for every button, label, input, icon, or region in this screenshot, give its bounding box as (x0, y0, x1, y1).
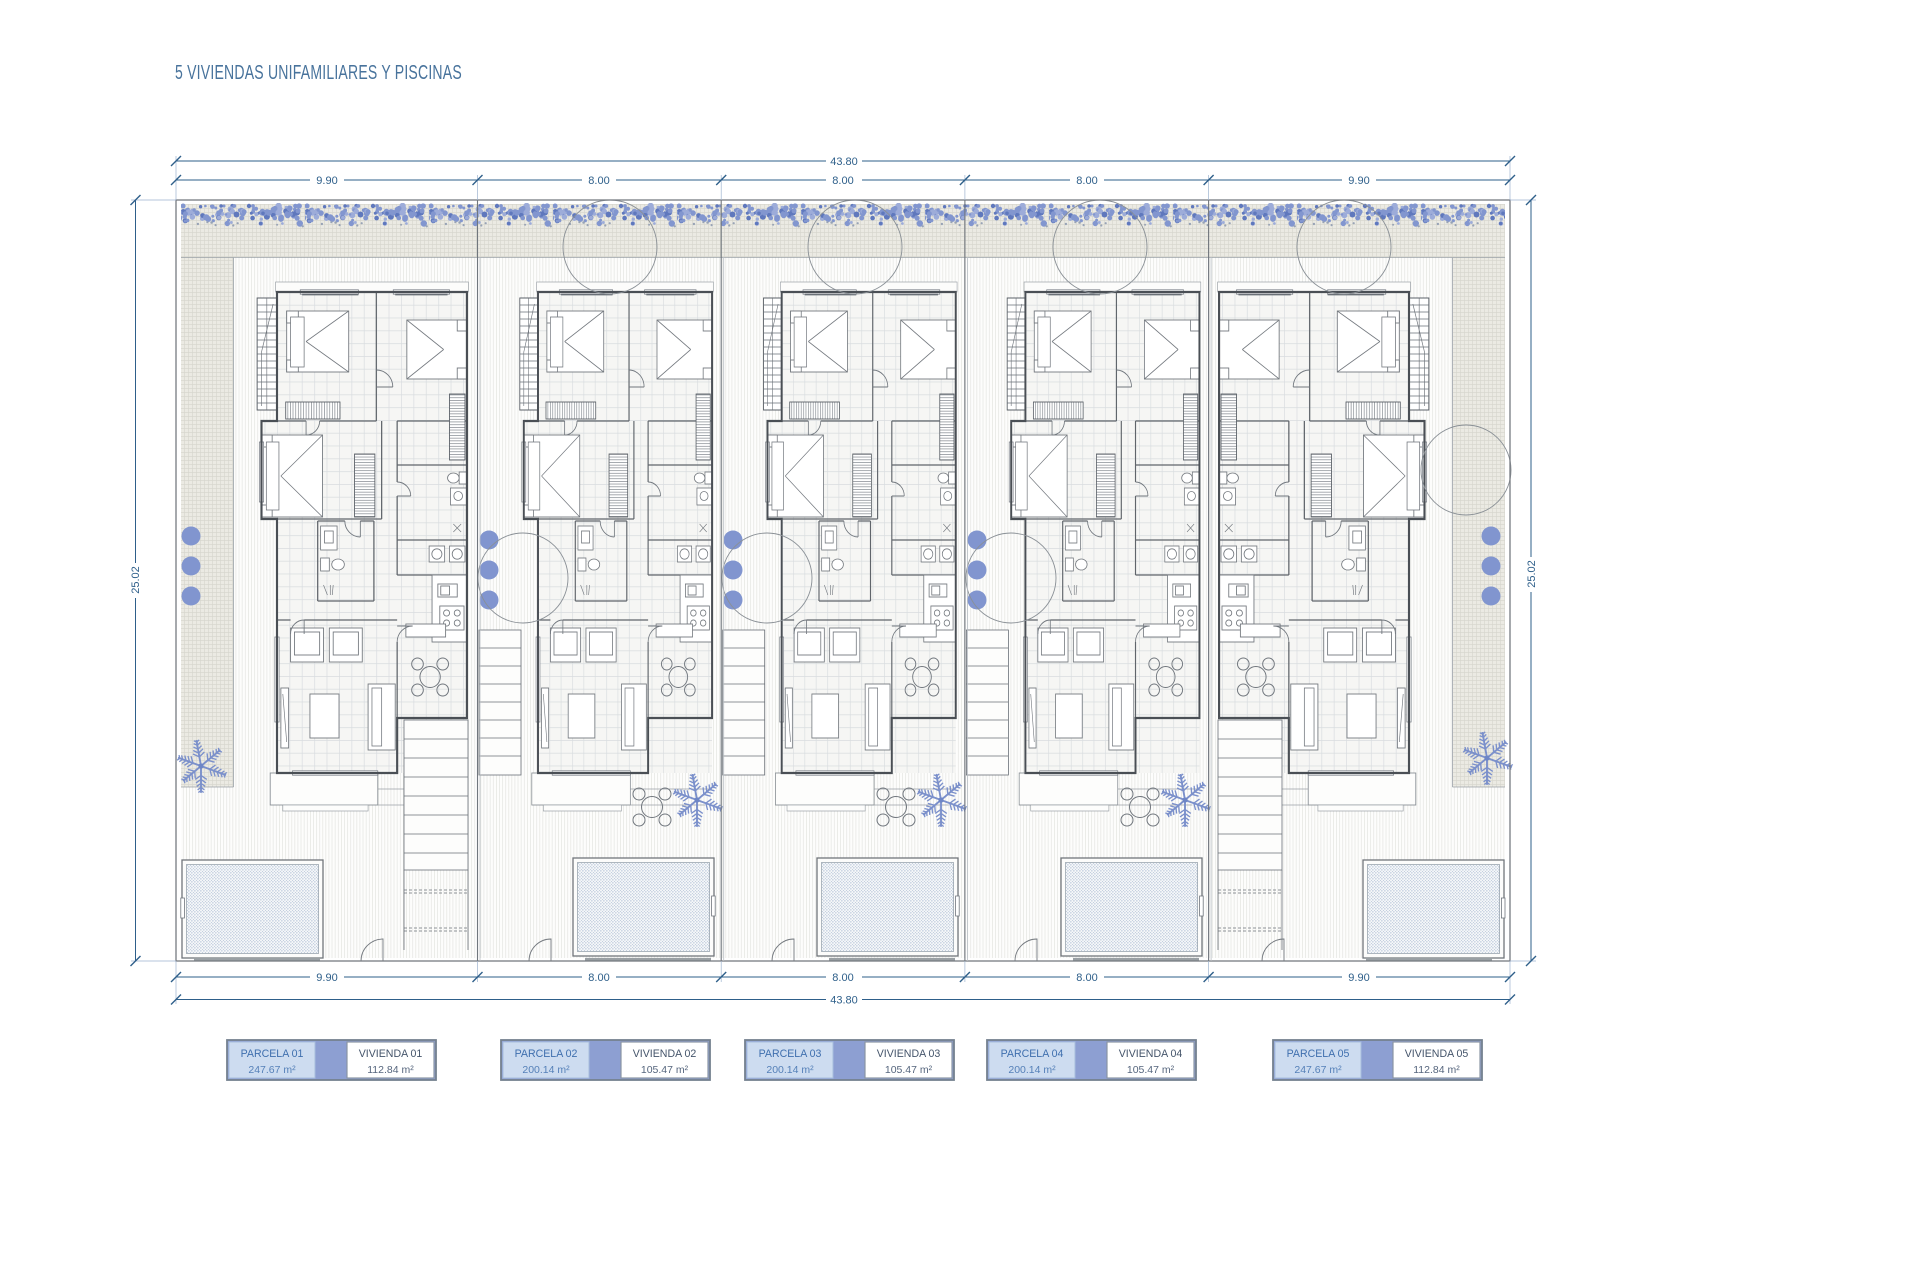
svg-text:5 VIVIENDAS UNIFAMILIARES Y PI: 5 VIVIENDAS UNIFAMILIARES Y PISCINAS (175, 60, 462, 83)
svg-text:43.80: 43.80 (830, 995, 858, 1007)
svg-text:112.84 m²: 112.84 m² (1413, 1064, 1460, 1076)
svg-text:8.00: 8.00 (832, 175, 853, 187)
svg-text:VIVIENDA 01: VIVIENDA 01 (359, 1048, 423, 1060)
svg-text:105.47 m²: 105.47 m² (641, 1064, 689, 1076)
svg-text:43.80: 43.80 (830, 156, 858, 168)
svg-text:PARCELA 05: PARCELA 05 (1287, 1048, 1350, 1060)
svg-text:VIVIENDA 04: VIVIENDA 04 (1119, 1048, 1183, 1060)
svg-text:247.67 m²: 247.67 m² (248, 1064, 296, 1076)
svg-text:PARCELA 02: PARCELA 02 (515, 1048, 578, 1060)
svg-text:9.90: 9.90 (316, 175, 337, 187)
svg-text:25.02: 25.02 (130, 566, 142, 594)
svg-text:200.14 m²: 200.14 m² (1008, 1064, 1056, 1076)
svg-text:PARCELA 04: PARCELA 04 (1001, 1048, 1064, 1060)
svg-text:8.00: 8.00 (588, 972, 609, 984)
svg-text:9.90: 9.90 (316, 972, 337, 984)
svg-text:PARCELA 03: PARCELA 03 (759, 1048, 822, 1060)
svg-text:105.47 m²: 105.47 m² (1127, 1064, 1175, 1076)
svg-text:112.84 m²: 112.84 m² (367, 1064, 414, 1076)
svg-text:8.00: 8.00 (588, 175, 609, 187)
svg-text:9.90: 9.90 (1348, 972, 1369, 984)
svg-text:8.00: 8.00 (1076, 175, 1097, 187)
svg-text:8.00: 8.00 (832, 972, 853, 984)
svg-text:200.14 m²: 200.14 m² (522, 1064, 570, 1076)
svg-text:200.14 m²: 200.14 m² (766, 1064, 814, 1076)
svg-text:25.02: 25.02 (1526, 560, 1538, 588)
svg-text:9.90: 9.90 (1348, 175, 1369, 187)
svg-text:VIVIENDA 02: VIVIENDA 02 (633, 1048, 697, 1060)
svg-text:247.67 m²: 247.67 m² (1294, 1064, 1342, 1076)
svg-text:PARCELA 01: PARCELA 01 (241, 1048, 304, 1060)
svg-text:105.47 m²: 105.47 m² (885, 1064, 933, 1076)
svg-text:VIVIENDA 05: VIVIENDA 05 (1405, 1048, 1469, 1060)
svg-text:VIVIENDA 03: VIVIENDA 03 (877, 1048, 941, 1060)
svg-text:8.00: 8.00 (1076, 972, 1097, 984)
